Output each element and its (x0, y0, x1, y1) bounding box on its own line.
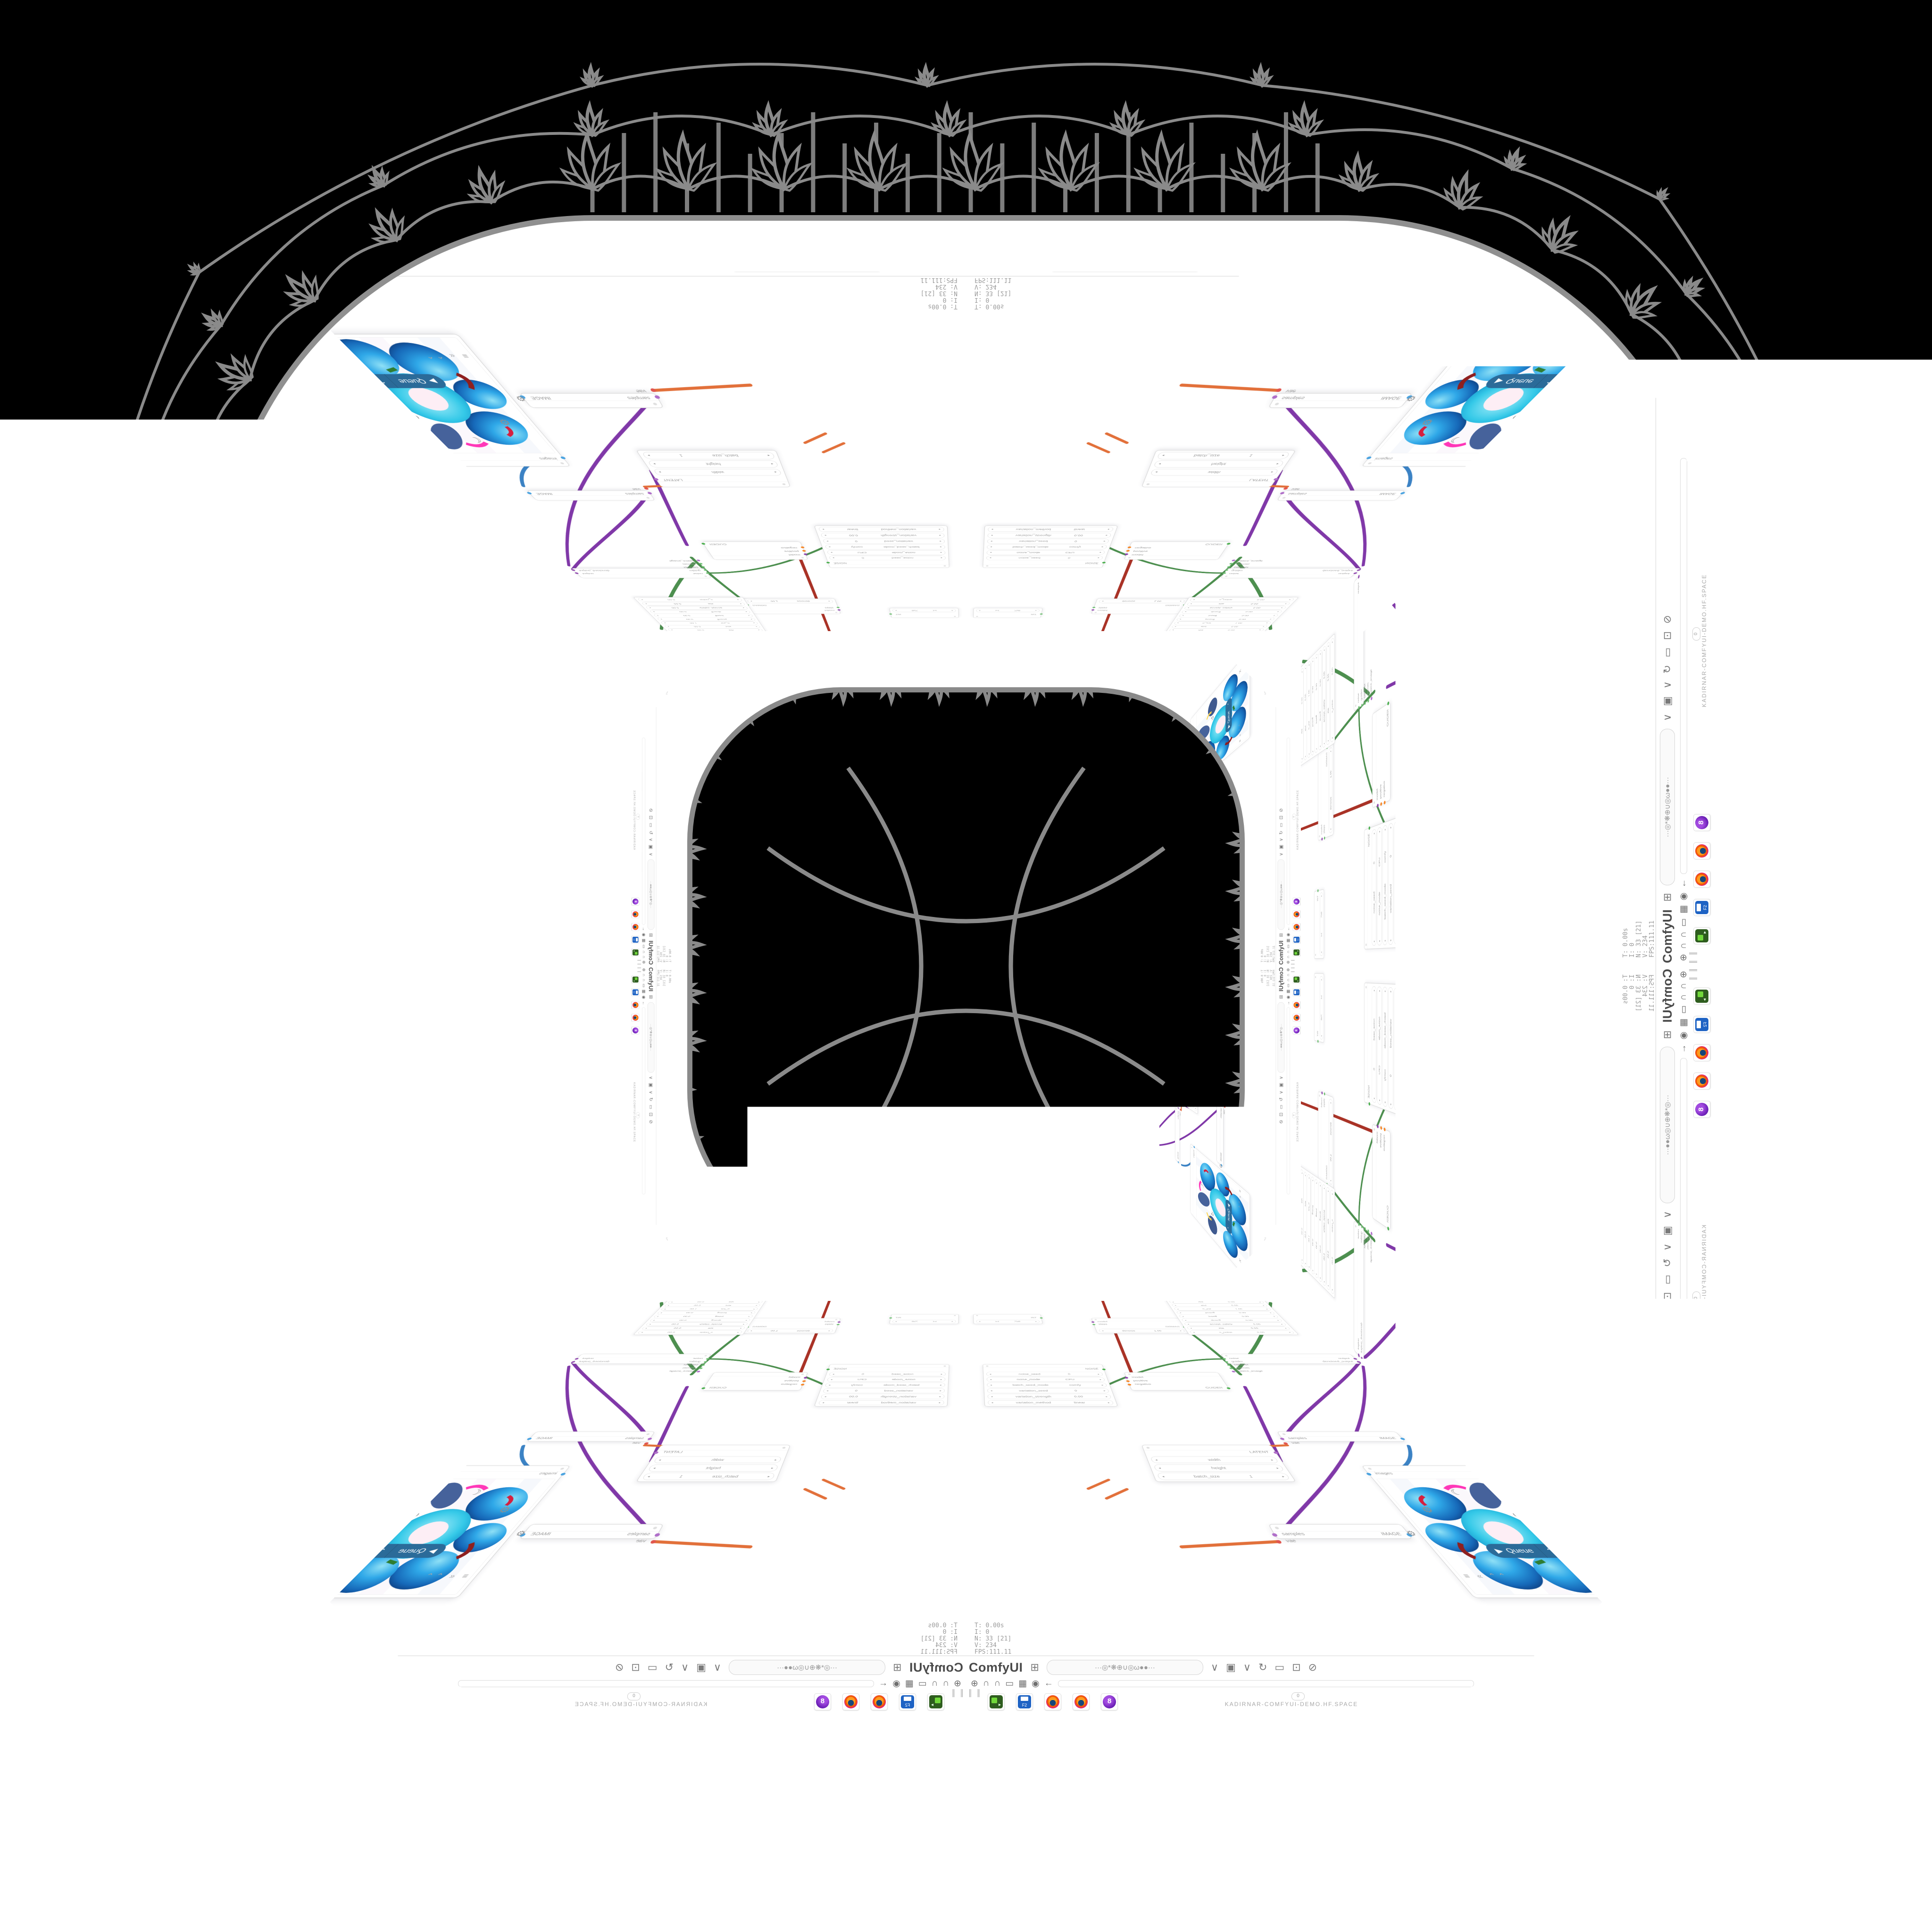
save-icon[interactable]: ▣ (1083, 1279, 1087, 1283)
widget-noise-seed[interactable]: ◂noise_seed0▸ (1372, 829, 1376, 946)
extensions-icon[interactable]: ⊡ (1279, 816, 1283, 819)
workflow-tab-pill[interactable] (458, 1680, 874, 1687)
chevron-down-icon[interactable]: ∨ (1211, 1662, 1218, 1673)
widget-accept-safety[interactable]: ◂accept_safety0.00▸ (645, 1323, 749, 1326)
redo-icon[interactable]: ∩ (1678, 994, 1689, 1001)
widget-noise-seed[interactable]: ◂noise_seed0▸ (829, 556, 946, 560)
node-vae-decode[interactable]: samples vae IMAGE (491, 526, 500, 656)
firefox-icon[interactable] (222, 871, 239, 888)
save-icon[interactable]: ▣ (1226, 259, 1236, 270)
address-bar[interactable]: ···◎*❋⊕∪◎ω●●··· (1278, 859, 1284, 930)
trash-icon[interactable]: ▦ (243, 1018, 254, 1027)
widget-variation-strength[interactable]: ◂variation_strength0.00▸ (533, 988, 538, 1112)
firefox-icon[interactable] (1693, 842, 1710, 859)
firefox-icon[interactable] (1693, 871, 1710, 888)
floppy-app-icon[interactable] (222, 1016, 239, 1033)
widget-batch-seed-mode[interactable]: ◂batch_seed_modecomfy▸ (987, 545, 1108, 550)
purple-app-icon[interactable] (1693, 1101, 1710, 1118)
address-bar[interactable]: ···◎*❋⊕∪◎ω●●··· (859, 1278, 930, 1284)
firefox-icon[interactable] (1014, 1293, 1022, 1300)
firefox-icon[interactable] (923, 1293, 931, 1300)
save-icon[interactable]: ▣ (1662, 696, 1673, 706)
firefox-icon[interactable] (910, 632, 918, 639)
widget-atol[interactable]: ◂atol0.00▸ (1304, 1171, 1307, 1268)
extensions-icon[interactable]: ⊡ (631, 259, 640, 270)
widget-h-init[interactable]: ◂h_init1.00▸ (622, 1174, 625, 1272)
floppy-app-icon[interactable] (1016, 222, 1033, 239)
add-workflow-icon[interactable]: ⊕ (954, 243, 961, 254)
node-int-256[interactable]: INT ◂ int256▸ (973, 608, 1043, 618)
close-icon[interactable]: ✕ (1238, 666, 1242, 675)
node-empty-latent[interactable]: LATENT ◂width▸ ◂height▸ ◂batch_size1▸ (450, 1141, 487, 1296)
share-icon[interactable]: ⊞ (893, 1662, 901, 1673)
widget-height[interactable]: ◂height▸ (1465, 1153, 1472, 1285)
workflow-tab-pill[interactable] (1058, 245, 1474, 252)
extensions-icon[interactable]: ⊡ (259, 1292, 270, 1300)
share-icon[interactable]: ⊞ (995, 1279, 999, 1283)
badge-icon[interactable]: ◉ (933, 641, 936, 646)
redo-icon[interactable]: ∩ (641, 979, 646, 982)
firefox-icon[interactable] (1293, 923, 1300, 931)
menu-icons[interactable]: ≡ « ⌃⌃ (1460, 1572, 1513, 1581)
chevron-down-icon[interactable]: ∨ (838, 1279, 841, 1283)
widget-noise-mode[interactable]: ◂noise_modeCPU▸ (550, 827, 555, 946)
firefox-icon[interactable] (842, 1693, 859, 1710)
terminal-icon[interactable] (1693, 988, 1710, 1005)
chevron-down-icon[interactable]: ∨ (649, 1076, 653, 1079)
workflow-tab-pill[interactable] (1058, 1680, 1474, 1687)
widget-icoeff[interactable]: ◂icoeff0.00▸ (1315, 1178, 1318, 1279)
widget-noise-mode[interactable]: ◂noise_modeCPU▸ (550, 987, 555, 1106)
share-icon[interactable]: ⊞ (259, 1031, 270, 1039)
badge-icon[interactable]: ◉ (996, 641, 999, 646)
folder-icon[interactable]: ▭ (918, 243, 927, 254)
trash-icon[interactable]: ▦ (1018, 1678, 1027, 1689)
widget-dcoeff[interactable]: ◂dcoeff0.00▸ (1318, 1181, 1322, 1283)
close-icon[interactable]: ✕ (1277, 1283, 1283, 1287)
terminal-icon[interactable] (632, 949, 639, 956)
node-empty-latent[interactable]: LATENT ◂width▸ ◂height▸ ◂batch_size1▸ (450, 636, 487, 791)
node-empty-latent[interactable]: LATENT ◂width▸ ◂height▸ ◂batch_size1▸ (636, 450, 791, 487)
address-bar[interactable]: ···◎*❋⊕∪◎ω●●··· (729, 257, 885, 272)
undo-icon[interactable]: ∩ (1678, 983, 1689, 990)
widget-variation-method[interactable]: ◂variation_methodlinear▸ (988, 1400, 1114, 1405)
widget-h-init[interactable]: ◂h_init1.00▸ (622, 660, 625, 759)
terminal-icon[interactable] (949, 632, 956, 639)
share-icon[interactable]: ⊞ (1279, 995, 1283, 999)
widget-icoeff[interactable]: ◂icoeff0.00▸ (1178, 1315, 1279, 1318)
widget-noise-mode[interactable]: ◂noise_modeCPU▸ (987, 1377, 1106, 1382)
widget-batch-seed-mode[interactable]: ◂batch_seed_modecomfy▸ (987, 1382, 1108, 1387)
widget-batch-seed-mode[interactable]: ◂batch_seed_modecomfy▸ (824, 545, 945, 550)
blocked-icon[interactable]: ⊘ (808, 1279, 812, 1283)
terminal-icon[interactable] (927, 222, 944, 239)
clipboard-icon[interactable]: ▭ (1105, 649, 1109, 653)
node-int-256[interactable]: INT ◂ int256▸ (608, 973, 618, 1043)
widget-variation-strength[interactable]: ◂variation_strength0.00▸ (1394, 988, 1399, 1112)
close-icon[interactable]: ✕ (690, 1257, 694, 1266)
share-icon[interactable]: ⊞ (259, 893, 270, 901)
widget-eta[interactable]: ◂eta0.00▸ (602, 641, 606, 746)
close-icon[interactable]: ✕ (649, 645, 655, 649)
add-workflow-icon[interactable]: ⊕ (960, 641, 964, 646)
widget-icoeff[interactable]: ◂icoeff0.00▸ (653, 1315, 754, 1318)
node-int-256[interactable]: INT ◂ int256▸ (608, 889, 618, 959)
widget-rtol[interactable]: ◂rtol0.00▸ (667, 1301, 764, 1303)
blocked-icon[interactable]: ⊘ (615, 259, 624, 270)
widget-variation-method[interactable]: ◂variation_methodlinear▸ (818, 527, 944, 532)
clipboard-icon[interactable]: ▭ (1105, 1279, 1109, 1283)
workflow-tab-pill[interactable] (245, 1058, 252, 1474)
folder-icon[interactable]: ▭ (945, 1286, 949, 1291)
widget-eta[interactable]: ◂eta0.00▸ (602, 1186, 606, 1291)
blocked-icon[interactable]: ⊘ (615, 1662, 624, 1673)
widget-denoise[interactable]: ◂ denoise1.00▸ (600, 1099, 603, 1185)
node-basic-scheduler[interactable]: model steps SIGMAS ◂ denoise1.00▸ (1318, 743, 1333, 841)
widget-eta[interactable]: ◂eta0.00▸ (1326, 1186, 1330, 1291)
widget-batch-seed-mode[interactable]: ◂batch_seed_modecomfy▸ (1382, 987, 1387, 1108)
node-random-noise[interactable]: NOISE ◂noise_seed0▸ ◂noise_modeCPU▸ ◂bat… (1364, 814, 1407, 949)
chevron-down-icon[interactable]: ∨ (853, 1279, 856, 1283)
widget-int[interactable]: ◂ int256▸ (892, 1320, 956, 1323)
folder-icon[interactable]: ▭ (1005, 1678, 1014, 1689)
widget-batch-size[interactable]: ◂batch_size1▸ (1157, 452, 1291, 459)
node-empty-latent[interactable]: LATENT ◂width▸ ◂height▸ ◂batch_size1▸ (1141, 450, 1296, 487)
chevron-down-icon[interactable]: ∨ (1662, 1211, 1673, 1218)
widget-dcoeff[interactable]: ◂dcoeff0.00▸ (649, 1318, 751, 1322)
widget-height[interactable]: ◂height▸ (1153, 460, 1285, 467)
node-sampler-custom-advanced[interactable]: noise guider sampler sigmas latent_image… (568, 571, 578, 712)
widget-dcoeff[interactable]: ◂dcoeff0.00▸ (1181, 610, 1283, 614)
widget-denoise[interactable]: ◂ denoise1.00▸ (1099, 600, 1185, 603)
widget-atol[interactable]: ◂atol0.00▸ (1171, 1304, 1268, 1307)
node-basic-scheduler[interactable]: model steps SIGMAS ◂ denoise1.00▸ (1091, 1318, 1189, 1333)
widget-batch-seed-mode[interactable]: ◂batch_seed_modecomfy▸ (824, 1382, 945, 1387)
badge-icon[interactable]: ◉ (1032, 1678, 1040, 1689)
trash-icon[interactable]: ▦ (905, 1678, 914, 1689)
widget-eta[interactable]: ◂eta0.00▸ (641, 1326, 746, 1330)
node-empty-latent[interactable]: LATENT ◂width▸ ◂height▸ ◂batch_size1▸ (1445, 1141, 1482, 1296)
reload-icon[interactable]: ↻ (649, 1098, 653, 1101)
save-icon[interactable]: ▣ (1279, 845, 1283, 849)
share-icon[interactable]: ⊞ (893, 259, 901, 270)
trash-icon[interactable]: ▦ (990, 1286, 993, 1291)
clipboard-icon[interactable]: ▭ (649, 1105, 653, 1109)
trash-icon[interactable]: ▦ (243, 905, 254, 914)
workflow-tab-pill[interactable] (642, 738, 645, 924)
widget-h-init[interactable]: ◂h_init1.00▸ (1307, 1174, 1310, 1272)
address-bar[interactable]: ···◎*❋⊕∪◎ω●●··· (648, 859, 654, 930)
share-icon[interactable]: ⊞ (995, 649, 999, 653)
widget-eta[interactable]: ◂eta0.00▸ (1186, 1326, 1291, 1330)
terminal-icon[interactable] (988, 222, 1005, 239)
firefox-icon[interactable] (1293, 1001, 1300, 1009)
blocked-icon[interactable]: ⊘ (1120, 1279, 1124, 1283)
widget-denoise[interactable]: ◂ denoise1.00▸ (600, 747, 603, 833)
menu-icons[interactable]: ≡ « ⌃⌃ (419, 1572, 472, 1581)
node-int-256[interactable]: INT ◂ int256▸ (889, 1314, 959, 1324)
trash-icon[interactable]: ▦ (939, 641, 942, 646)
reload-icon[interactable]: ↻ (665, 1662, 674, 1673)
clipboard-icon[interactable]: ▭ (823, 649, 827, 653)
blocked-icon[interactable]: ⊘ (1120, 649, 1124, 653)
menu-icons[interactable]: ≡ « ⌃⌃ (352, 419, 360, 472)
node-vae-decode-2[interactable]: samples vae IMAGE (1524, 1268, 1539, 1413)
node-vae-decode[interactable]: samples vae IMAGE (491, 1277, 500, 1406)
widget-denoise[interactable]: ◂ denoise1.00▸ (747, 600, 833, 603)
floppy-app-icon[interactable] (632, 936, 639, 943)
trash-icon[interactable]: ▦ (1018, 243, 1027, 254)
node-guider[interactable]: model positive negative GUIDER (702, 1372, 808, 1390)
terminal-icon[interactable] (927, 1693, 944, 1710)
widget-accept-safety[interactable]: ◂accept_safety0.00▸ (606, 645, 609, 749)
folder-icon[interactable]: ▭ (1678, 918, 1689, 927)
firefox-icon[interactable] (632, 923, 639, 931)
firefox-icon[interactable] (842, 222, 859, 239)
extensions-icon[interactable]: ⊡ (1292, 1662, 1300, 1673)
widget-pcoeff[interactable]: ◂pcoeff0.00▸ (1176, 1311, 1275, 1315)
node-guider[interactable]: model positive negative GUIDER (1372, 1124, 1390, 1231)
node-random-noise[interactable]: NOISE ◂noise_seed0▸ ◂noise_modeCPU▸ ◂bat… (814, 1364, 949, 1407)
widget-variation-seed[interactable]: ◂variation_seed0▸ (539, 987, 544, 1109)
blocked-icon[interactable]: ⊘ (1662, 615, 1673, 624)
floppy-app-icon[interactable] (1293, 989, 1300, 996)
workflow-tab-pill[interactable] (1287, 738, 1290, 924)
node-guider[interactable]: model positive negative GUIDER (702, 541, 808, 559)
address-bar[interactable]: ···◎*❋⊕∪◎ω●●··· (1047, 257, 1203, 272)
purple-app-icon[interactable] (898, 1293, 905, 1300)
close-icon[interactable]: ✕ (649, 1283, 655, 1287)
node-sampler-custom-advanced[interactable]: noise guider sampler sigmas latent_image… (1354, 1221, 1364, 1361)
badge-icon[interactable]: ◉ (1032, 243, 1040, 254)
widget-noise-seed[interactable]: ◂noise_seed0▸ (1372, 986, 1376, 1103)
folder-icon[interactable]: ▭ (1286, 945, 1291, 949)
reload-icon[interactable]: ↻ (259, 665, 270, 674)
menu-icons[interactable]: ≡ « ⌃⌃ (419, 352, 472, 360)
widget-accept-safety[interactable]: ◂accept_safety0.00▸ (1183, 1323, 1287, 1326)
widget-batch-seed-mode[interactable]: ◂batch_seed_modecomfy▸ (545, 987, 550, 1108)
widget-s-noise[interactable]: ◂s_noise0.00▸ (598, 1189, 601, 1295)
address-bar[interactable]: ···◎*❋⊕∪◎ω●●··· (1002, 648, 1073, 654)
blocked-icon[interactable]: ⊘ (649, 1120, 653, 1124)
node-vae-decode[interactable]: samples vae IMAGE (1432, 526, 1441, 656)
chevron-down-icon[interactable]: ∨ (1279, 1091, 1283, 1094)
terminal-icon[interactable] (1293, 976, 1300, 983)
blocked-icon[interactable]: ⊘ (1308, 1662, 1317, 1673)
undo-icon[interactable]: ∩ (243, 983, 254, 990)
trash-icon[interactable]: ▦ (641, 939, 646, 942)
widget-batch-size[interactable]: ◂batch_size1▸ (1473, 641, 1480, 775)
blocked-icon[interactable]: ⊘ (259, 615, 270, 624)
widget-dcoeff[interactable]: ◂dcoeff0.00▸ (1181, 1318, 1283, 1322)
redo-icon[interactable]: ∩ (994, 1678, 1001, 1689)
extensions-icon[interactable]: ⊡ (649, 816, 653, 819)
widget-s-noise[interactable]: ◂s_noise0.00▸ (1331, 637, 1334, 743)
save-icon[interactable]: ▣ (1662, 1226, 1673, 1236)
node-vae-decode-2[interactable]: samples vae IMAGE (393, 519, 408, 664)
redo-icon[interactable]: ∩ (1678, 932, 1689, 938)
floppy-app-icon[interactable] (936, 1293, 943, 1300)
widget-pcoeff[interactable]: ◂pcoeff0.00▸ (618, 657, 621, 756)
purple-app-icon[interactable] (814, 1693, 831, 1710)
trash-icon[interactable]: ▦ (1286, 990, 1291, 993)
widget-width[interactable]: ◂width▸ (1150, 469, 1279, 475)
widget-pcoeff[interactable]: ◂pcoeff0.00▸ (618, 1176, 621, 1275)
floppy-app-icon[interactable] (989, 632, 996, 639)
firefox-icon[interactable] (1014, 632, 1022, 639)
widget-s-noise[interactable]: ◂s_noise0.00▸ (637, 598, 743, 601)
node-sampler-custom-advanced[interactable]: noise guider sampler sigmas latent_image… (1354, 571, 1364, 712)
blocked-icon[interactable]: ⊘ (1308, 259, 1317, 270)
redo-icon[interactable]: ∩ (979, 1286, 982, 1291)
node-vae-decode-2[interactable]: samples vae IMAGE (393, 1268, 408, 1413)
undo-icon[interactable]: ∩ (974, 641, 976, 646)
share-icon[interactable]: ⊞ (1031, 259, 1039, 270)
widget-variation-method[interactable]: ◂variation_methodlinear▸ (527, 818, 532, 944)
widget-s-noise[interactable]: ◂s_noise0.00▸ (1189, 598, 1295, 601)
node-sampler-custom-advanced[interactable]: noise guider sampler sigmas latent_image… (1221, 1354, 1361, 1364)
add-workflow-icon[interactable]: ⊕ (954, 1678, 961, 1689)
chevron-down-icon[interactable]: ∨ (259, 1211, 270, 1218)
floppy-app-icon[interactable] (936, 632, 943, 639)
redo-icon[interactable]: ∩ (243, 932, 254, 938)
widget-width[interactable]: ◂width▸ (1457, 653, 1463, 782)
widget-atol[interactable]: ◂atol0.00▸ (664, 1304, 761, 1307)
widget-int[interactable]: ◂ int256▸ (976, 1320, 1040, 1323)
save-icon[interactable]: ▣ (649, 1083, 653, 1087)
widget-height[interactable]: ◂height▸ (1465, 647, 1472, 779)
firefox-icon[interactable] (1001, 1293, 1009, 1300)
widget-variation-seed[interactable]: ◂variation_seed0▸ (539, 823, 544, 945)
widget-width[interactable]: ◂width▸ (653, 1457, 782, 1463)
node-vae-decode-2[interactable]: samples vae IMAGE (1268, 1524, 1413, 1539)
trash-icon[interactable]: ▦ (1678, 905, 1689, 914)
chevron-down-icon[interactable]: ∨ (838, 649, 841, 653)
terminal-icon[interactable] (222, 988, 239, 1005)
clipboard-icon[interactable]: ▭ (259, 1274, 270, 1284)
node-vae-decode-2[interactable]: samples vae IMAGE (519, 1524, 664, 1539)
save-icon[interactable]: ▣ (845, 1279, 849, 1283)
floppy-app-icon[interactable] (899, 222, 916, 239)
clipboard-icon[interactable]: ▭ (259, 648, 270, 658)
redo-icon[interactable]: ∩ (979, 641, 982, 646)
extensions-icon[interactable]: ⊡ (1662, 631, 1673, 640)
widget-variation-strength[interactable]: ◂variation_strength0.00▸ (533, 820, 538, 944)
widget-noise-seed[interactable]: ◂noise_seed0▸ (986, 1372, 1103, 1376)
widget-atol[interactable]: ◂atol0.00▸ (664, 625, 761, 628)
widget-icoeff[interactable]: ◂icoeff0.00▸ (1178, 614, 1279, 617)
address-bar[interactable]: ···◎*❋⊕∪◎ω●●··· (648, 1002, 654, 1073)
widget-variation-seed[interactable]: ◂variation_seed0▸ (823, 1388, 945, 1393)
floppy-app-icon[interactable] (899, 1693, 916, 1710)
folder-icon[interactable]: ▭ (641, 983, 646, 987)
redo-icon[interactable]: ∩ (1286, 950, 1291, 953)
share-icon[interactable]: ⊞ (1662, 1031, 1673, 1039)
reload-icon[interactable]: ↻ (1098, 649, 1101, 653)
widget-rtol[interactable]: ◂rtol0.00▸ (1301, 1169, 1303, 1265)
floppy-app-icon[interactable] (632, 989, 639, 996)
chevron-down-icon[interactable]: ∨ (649, 853, 653, 856)
workflow-tab-pill[interactable] (1287, 1008, 1290, 1194)
widget-batch-seed-mode[interactable]: ◂batch_seed_modecomfy▸ (1382, 824, 1387, 945)
widget-denoise[interactable]: ◂ denoise1.00▸ (1329, 747, 1332, 833)
widget-batch-size[interactable]: ◂batch_size1▸ (452, 641, 459, 775)
purple-app-icon[interactable] (222, 1101, 239, 1118)
firefox-icon[interactable] (1073, 1693, 1090, 1710)
purple-app-icon[interactable] (1693, 814, 1710, 831)
badge-icon[interactable]: ◉ (1678, 1032, 1689, 1040)
widget-height[interactable]: ◂height▸ (1153, 1465, 1285, 1472)
widget-h-init[interactable]: ◂h_init1.00▸ (1307, 660, 1310, 759)
floppy-app-icon[interactable] (1693, 1016, 1710, 1033)
widget-h-init[interactable]: ◂h_init1.00▸ (1174, 1307, 1272, 1310)
trash-icon[interactable]: ▦ (990, 641, 993, 646)
address-bar[interactable]: ···◎*❋⊕∪◎ω●●··· (859, 648, 930, 654)
workflow-tab-pill[interactable] (245, 458, 252, 874)
add-workflow-icon[interactable]: ⊕ (641, 968, 646, 971)
widget-accept-safety[interactable]: ◂accept_safety0.00▸ (645, 606, 749, 609)
firefox-icon[interactable] (910, 1293, 918, 1300)
reload-icon[interactable]: ↻ (665, 259, 674, 270)
save-icon[interactable]: ▣ (259, 1226, 270, 1236)
node-sampler-custom-advanced[interactable]: noise guider sampler sigmas latent_image… (1221, 568, 1361, 578)
widget-dcoeff[interactable]: ◂dcoeff0.00▸ (610, 1181, 614, 1283)
undo-icon[interactable]: ∩ (1286, 974, 1291, 976)
save-icon[interactable]: ▣ (845, 649, 849, 653)
menu-icons[interactable]: ≡ « ⌃⌃ (1572, 419, 1581, 472)
add-workflow-icon[interactable]: ⊕ (1678, 971, 1689, 978)
node-random-noise[interactable]: NOISE ◂noise_seed0▸ ◂noise_modeCPU▸ ◂bat… (525, 814, 568, 949)
share-icon[interactable]: ⊞ (649, 933, 653, 937)
widget-width[interactable]: ◂width▸ (653, 469, 782, 475)
add-workflow-icon[interactable]: ⊕ (641, 960, 646, 964)
node-vae-decode[interactable]: samples vae IMAGE (526, 491, 656, 500)
clipboard-icon[interactable]: ▭ (1279, 1105, 1283, 1109)
undo-icon[interactable]: ∩ (1286, 956, 1291, 958)
node-random-noise[interactable]: NOISE ◂noise_seed0▸ ◂noise_modeCPU▸ ◂bat… (525, 983, 568, 1118)
workflow-tab-pill[interactable] (458, 245, 874, 252)
widget-accept-safety[interactable]: ◂accept_safety0.00▸ (1323, 645, 1326, 749)
blocked-icon[interactable]: ⊘ (1662, 1308, 1673, 1317)
extensions-icon[interactable]: ⊡ (631, 1662, 640, 1673)
share-icon[interactable]: ⊞ (1031, 1662, 1039, 1673)
undo-icon[interactable]: ∩ (983, 243, 990, 254)
purple-app-icon[interactable] (898, 632, 905, 639)
add-workflow-icon[interactable]: ⊕ (968, 1286, 971, 1291)
chevron-down-icon[interactable]: ∨ (649, 838, 653, 841)
node-basic-scheduler[interactable]: model steps SIGMAS ◂ denoise1.00▸ (1318, 1091, 1333, 1189)
reload-icon[interactable]: ↻ (1258, 1662, 1267, 1673)
undo-icon[interactable]: ∩ (243, 942, 254, 949)
clipboard-icon[interactable]: ▭ (1274, 1662, 1284, 1673)
widget-height[interactable]: ◂height▸ (647, 1465, 779, 1472)
widget-width[interactable]: ◂width▸ (1457, 1150, 1463, 1279)
widget-rtol[interactable]: ◂rtol0.00▸ (1301, 667, 1303, 764)
clipboard-icon[interactable]: ▭ (1662, 648, 1673, 658)
undo-icon[interactable]: ∩ (956, 1286, 958, 1291)
folder-icon[interactable]: ▭ (1678, 1005, 1689, 1014)
menu-icons[interactable]: ≡ « ⌃⌃ (1572, 1460, 1581, 1513)
node-int-256[interactable]: INT ◂ int256▸ (1314, 973, 1324, 1043)
chevron-down-icon[interactable]: ∨ (1243, 259, 1251, 270)
folder-icon[interactable]: ▭ (1005, 243, 1014, 254)
widget-int[interactable]: ◂ int256▸ (892, 609, 956, 612)
widget-noise-mode[interactable]: ◂noise_modeCPU▸ (827, 1377, 946, 1382)
firefox-icon[interactable] (871, 222, 888, 239)
badge-icon[interactable]: ◉ (892, 243, 900, 254)
purple-app-icon[interactable] (1027, 632, 1034, 639)
badge-icon[interactable]: ◉ (641, 996, 646, 999)
